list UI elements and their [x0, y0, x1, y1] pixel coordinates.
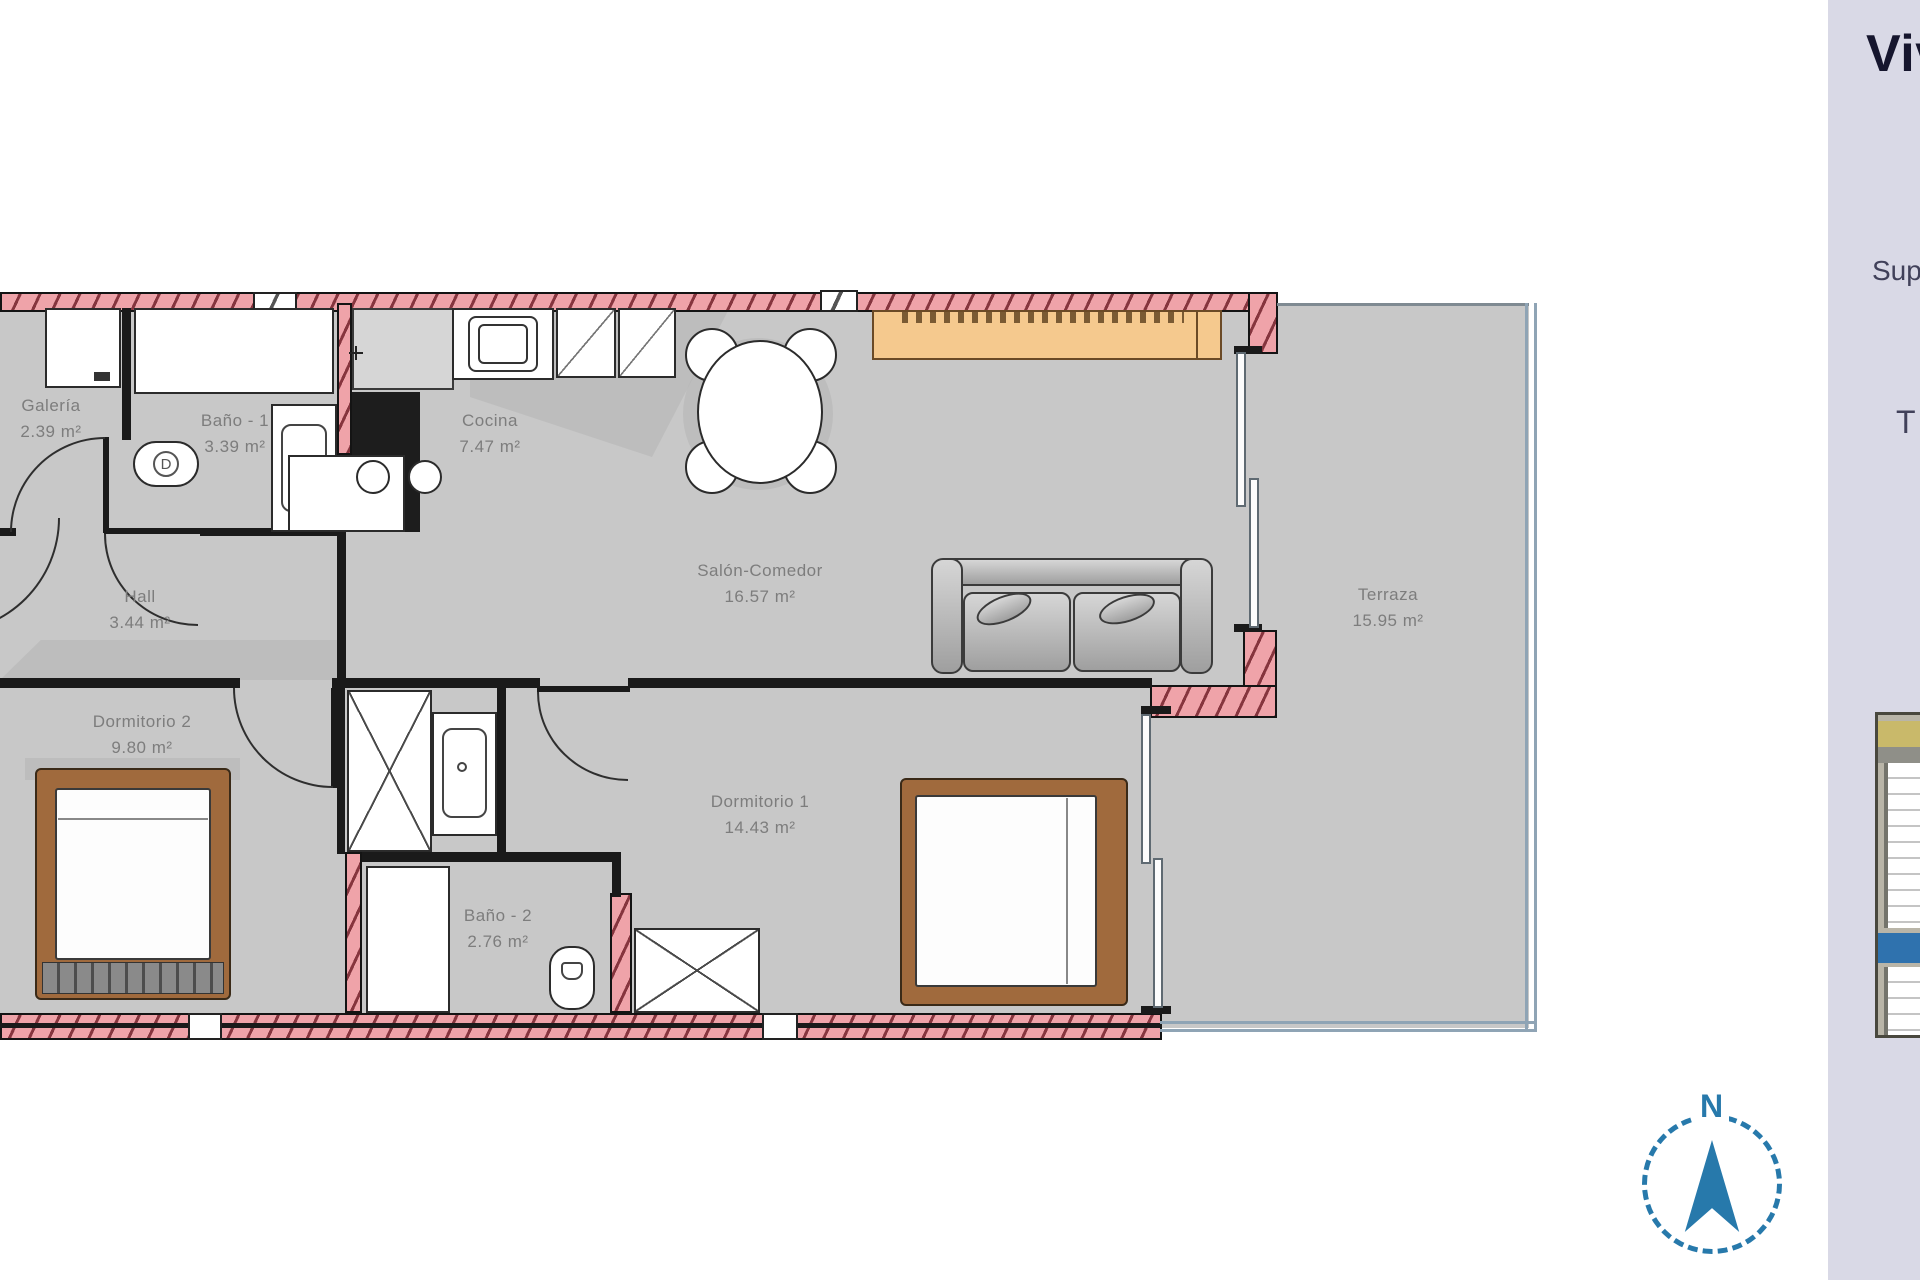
room-area: 7.47 m² [430, 434, 550, 460]
sofa-back [938, 558, 1210, 586]
room-label-dorm2: Dormitorio 2 9.80 m² [72, 709, 212, 762]
sliding-door-dorm1-1 [1141, 714, 1151, 864]
sofa-arm-left [931, 558, 963, 674]
wall-dorm2-top [0, 678, 240, 688]
room-name: Baño - 2 [438, 903, 558, 929]
bed-dorm2-pillowline [58, 818, 208, 820]
bed-dorm2-mattress [55, 788, 211, 960]
sidebar-label-t: T [1896, 404, 1920, 441]
kitchen-cabinet-2 [618, 308, 676, 378]
sliding-door-living-1 [1236, 352, 1246, 507]
kitchen-island [288, 455, 405, 532]
room-label-terraza: Terraza 15.95 m² [1318, 582, 1458, 635]
keyplan-floors-lower [1884, 967, 1920, 1038]
room-area: 15.95 m² [1318, 608, 1458, 634]
wall-hall-salon [337, 532, 346, 678]
room-name: Salón-Comedor [680, 558, 840, 584]
room-label-dorm1: Dormitorio 1 14.43 m² [690, 789, 830, 842]
bottom-wall-window-2 [762, 1013, 798, 1040]
terrace-top-edge [1277, 303, 1529, 306]
wall-vanity-right [497, 688, 506, 854]
sideboard-radiator [902, 312, 1184, 323]
wardrobe-corridor [347, 690, 432, 852]
compass-north-label: N [1694, 1088, 1729, 1125]
kitchen-corner-counter [352, 308, 454, 390]
room-name: Galería [1, 393, 101, 419]
building-keyplan-thumbnail [1875, 712, 1920, 1038]
room-label-salon: Salón-Comedor 16.57 m² [680, 558, 840, 611]
wall-dorm2-wardrobe [337, 688, 345, 854]
room-area: 3.44 m² [80, 610, 200, 636]
sofa-arm-right [1180, 558, 1213, 674]
bed-dorm1-pillowline [1066, 798, 1068, 984]
sidebar-label-superficie: Sup [1872, 255, 1920, 287]
kitchen-cabinet-1 [556, 308, 616, 378]
room-name: Cocina [430, 408, 550, 434]
shower-bano1 [134, 308, 334, 394]
keyplan-floors-upper [1884, 763, 1920, 928]
room-label-hall: Hall 3.44 m² [80, 584, 200, 637]
room-area: 2.76 m² [438, 929, 558, 955]
room-name: Dormitorio 1 [690, 789, 830, 815]
terrace-floor [1272, 305, 1529, 1028]
room-label-galeria: Galería 2.39 m² [1, 393, 101, 446]
wall-top-right-stub [1248, 292, 1278, 354]
sidebar-title: Viv [1866, 24, 1920, 84]
bottom-wall-window-1 [188, 1013, 222, 1040]
kitchen-tap-2 [355, 346, 357, 360]
room-area: 14.43 m² [690, 815, 830, 841]
sideboard-divider [1196, 312, 1198, 358]
room-area: 9.80 m² [72, 735, 212, 761]
keyplan-gray-band [1878, 747, 1920, 763]
room-area: 16.57 m² [680, 584, 840, 610]
room-name: Baño - 1 [175, 408, 295, 434]
wall-bottom-line [0, 1023, 1162, 1028]
jamb-dorm1-terrace-top [1141, 706, 1171, 714]
terrace-floor-lower [1160, 712, 1277, 1028]
kitchen-stool-1 [356, 460, 390, 494]
wall-galeria-bano1 [122, 308, 131, 440]
terrace-railing-bottom-inner [1160, 1021, 1537, 1024]
sliding-door-dorm1-2 [1153, 858, 1163, 1008]
dining-table [697, 340, 823, 484]
room-name: Dormitorio 2 [72, 709, 212, 735]
bed-dorm2-bench [42, 962, 224, 994]
toilet-bano2-bowl [561, 962, 583, 980]
wall-galeria-kitchen [337, 303, 352, 455]
terrace-railing-outer [1534, 303, 1537, 1031]
room-label-bano1: Baño - 1 3.39 m² [175, 408, 295, 461]
info-sidebar [1828, 0, 1920, 1280]
room-label-bano2: Baño - 2 2.76 m² [438, 903, 558, 956]
keyplan-highlight-floor [1878, 933, 1920, 963]
room-name: Hall [80, 584, 200, 610]
hall-shadow [0, 640, 340, 680]
wall-corridor-top [332, 678, 540, 688]
kitchen-stool-2 [408, 460, 442, 494]
sliding-door-living-2 [1249, 478, 1259, 628]
bed-dorm1-mattress [915, 795, 1097, 987]
washing-machine-detail [94, 372, 110, 381]
vanity-corridor-basin [442, 728, 487, 818]
wardrobe-dorm1 [634, 928, 760, 1013]
top-wall-vent-2 [820, 290, 858, 312]
wall-salon-bottom [628, 678, 1152, 688]
vanity-corridor-drain [457, 762, 467, 772]
room-label-cocina: Cocina 7.47 m² [430, 408, 550, 461]
room-name: Terraza [1318, 582, 1458, 608]
terrace-railing-bottom-outer [1160, 1029, 1537, 1032]
room-area: 2.39 m² [1, 419, 101, 445]
keyplan-roof-band [1878, 721, 1920, 747]
wall-bano2-top [362, 852, 612, 862]
room-area: 3.39 m² [175, 434, 295, 460]
wall-bano2-left [345, 852, 362, 1013]
wall-bano2-right [610, 893, 632, 1013]
kitchen-sink-basin [478, 324, 528, 364]
wall-bano2-right-stub [612, 852, 621, 897]
wall-step-vertical [1243, 630, 1277, 690]
floor-plan-page: D Galería 2. [0, 0, 1920, 1280]
terrace-railing-inner [1525, 303, 1528, 1031]
